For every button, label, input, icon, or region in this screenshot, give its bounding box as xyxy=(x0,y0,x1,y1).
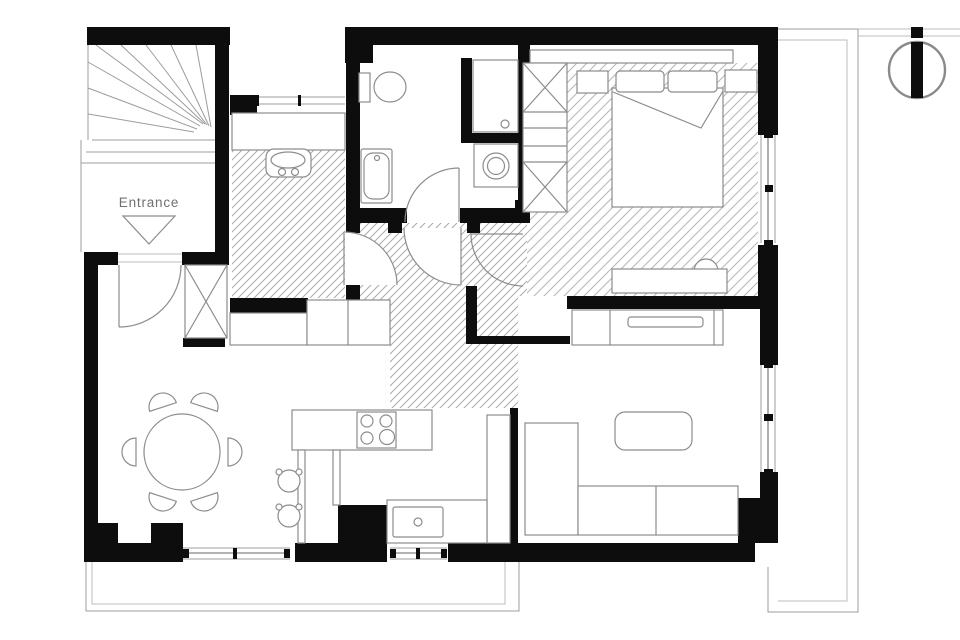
wall-kitchen-block xyxy=(338,505,387,543)
nightstand-right xyxy=(725,70,757,92)
bottom-window-2 xyxy=(390,548,447,559)
pillow-left xyxy=(616,71,664,92)
kitchen-tall-unit xyxy=(487,415,510,543)
wall-notch xyxy=(118,523,151,543)
entry-wardrobe xyxy=(185,265,227,338)
wall-stub-study xyxy=(230,95,257,115)
study-cabinet-1 xyxy=(230,313,307,345)
study-window xyxy=(255,95,345,106)
washing-machine xyxy=(474,144,518,187)
entrance-threshold xyxy=(118,254,182,262)
island-side-panel-2 xyxy=(333,450,340,505)
kitchen-island xyxy=(292,410,432,450)
entrance-callout: Entrance xyxy=(119,195,179,244)
wall-under-wardrobe xyxy=(183,338,225,347)
study-desk xyxy=(232,113,345,150)
bathroom xyxy=(359,60,518,203)
bedroom-closet xyxy=(523,63,567,212)
entrance-label: Entrance xyxy=(119,195,179,210)
wall-closet-bottom xyxy=(466,336,570,344)
wall-shower-divider-v xyxy=(461,58,472,143)
entrance-arrow-icon xyxy=(123,216,175,244)
living-window xyxy=(761,362,775,475)
wall-kitchen-living-divider xyxy=(510,408,518,562)
coffee-table xyxy=(615,412,692,450)
bedroom-doorway-hatch xyxy=(527,212,567,296)
floor-plan-canvas: Entrance xyxy=(0,0,960,640)
shower xyxy=(473,60,518,132)
wall-corridor-pier-2 xyxy=(467,220,480,233)
toilet xyxy=(359,72,406,102)
bedroom-top-shelf xyxy=(530,50,733,63)
nightstand-left xyxy=(577,71,608,93)
wall-left xyxy=(84,252,98,562)
bathtub xyxy=(361,149,392,203)
study-chair xyxy=(266,149,311,177)
tv xyxy=(628,317,703,327)
wall-bottom-pier-1 xyxy=(295,543,387,562)
dining-area xyxy=(122,389,302,527)
north-indicator-icon xyxy=(889,27,945,98)
dining-table xyxy=(144,414,220,490)
wall-bottom-right-corner xyxy=(738,498,778,543)
wall-corridor-pier-1 xyxy=(388,220,402,233)
wall-stair-right xyxy=(215,27,229,265)
island-side-panel xyxy=(298,450,305,543)
floor-plan-drawing: Entrance xyxy=(0,0,960,640)
bedroom-window xyxy=(761,132,775,246)
entrance-door xyxy=(119,265,181,327)
wall-bathroom-left xyxy=(346,60,360,233)
tv-console xyxy=(572,310,723,345)
sofa-chaise xyxy=(525,423,578,535)
bottom-terrace xyxy=(86,562,519,611)
wall-bathroom-top-chunk xyxy=(345,27,373,63)
wall-study-bottom xyxy=(230,298,308,313)
wall-entry-top-right xyxy=(182,252,229,265)
wall-right-low xyxy=(760,472,778,502)
sofa-seat xyxy=(578,486,738,535)
wall-right-upper-mid xyxy=(758,245,778,296)
kitchen xyxy=(292,410,510,543)
bottom-window-1 xyxy=(183,548,290,559)
pillow-right xyxy=(668,71,717,92)
wall-stair-top xyxy=(87,27,230,45)
wall-right-mid xyxy=(760,296,778,365)
wall-top xyxy=(345,27,778,45)
right-balcony xyxy=(768,29,960,612)
wall-closet-left xyxy=(466,286,477,344)
wall-shower-divider-h xyxy=(461,133,518,143)
wall-bedroom-bottom xyxy=(567,296,760,309)
wall-bottom-right xyxy=(448,543,755,562)
